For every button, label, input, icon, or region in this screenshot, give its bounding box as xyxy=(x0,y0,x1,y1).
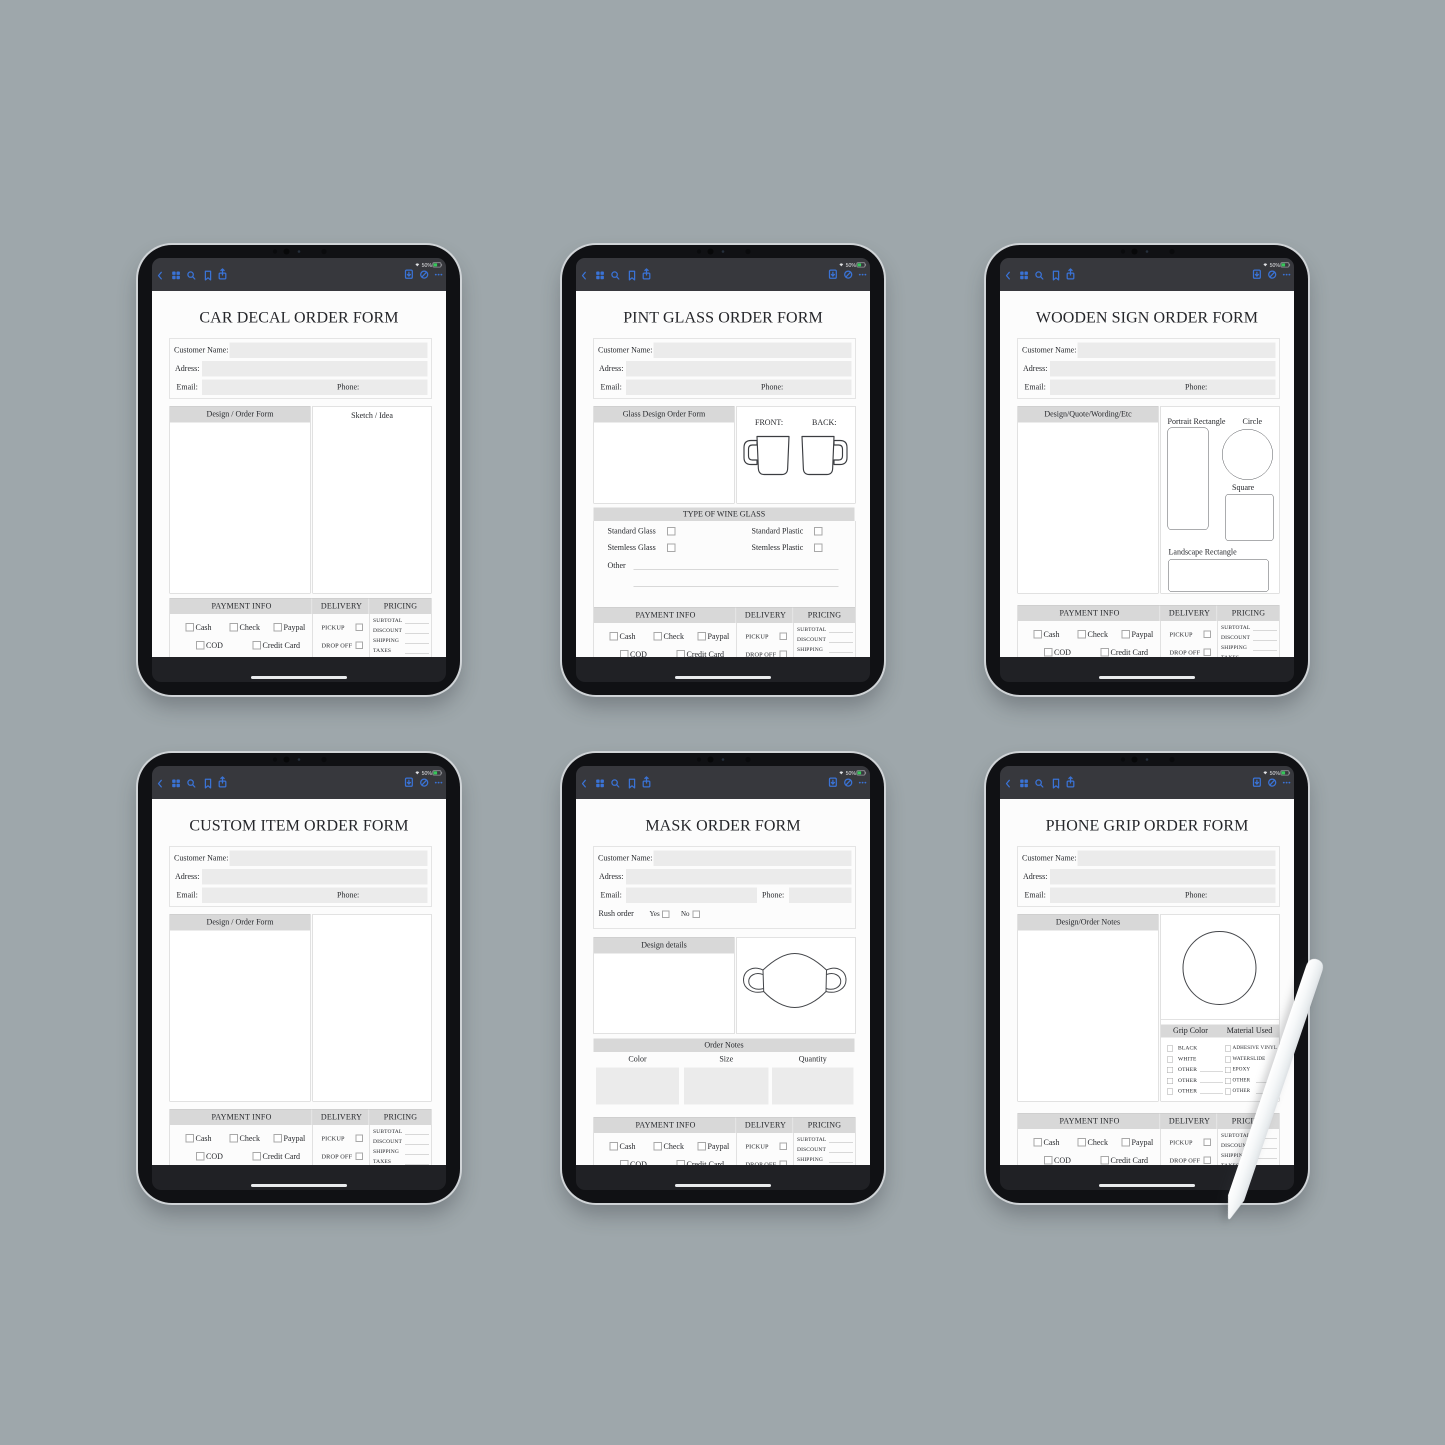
svg-text:50%: 50% xyxy=(1270,771,1281,777)
svg-text:50%: 50% xyxy=(846,263,857,269)
svg-text:50%: 50% xyxy=(1270,263,1281,269)
svg-text:50%: 50% xyxy=(846,771,857,777)
svg-text:50%: 50% xyxy=(422,263,433,269)
svg-text:50%: 50% xyxy=(422,771,433,777)
